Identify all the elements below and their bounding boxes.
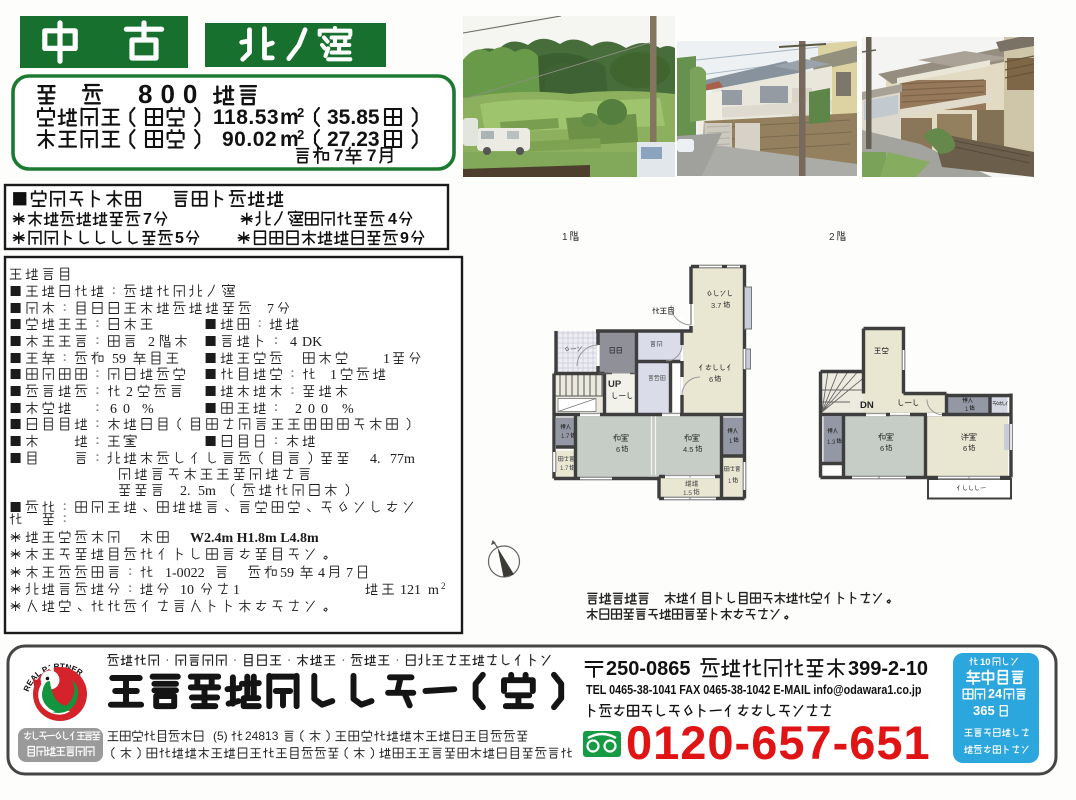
svg-text:10: 10 — [180, 583, 194, 598]
svg-text:1: 1 — [330, 368, 337, 383]
svg-text:1-0022: 1-0022 — [165, 566, 205, 581]
svg-text:4: 4 — [388, 211, 397, 228]
svg-text:UP: UP — [608, 379, 622, 390]
svg-text:399-2-10: 399-2-10 — [848, 658, 928, 680]
svg-text:24: 24 — [988, 687, 1002, 701]
svg-text:59: 59 — [112, 352, 126, 367]
svg-text:2: 2 — [441, 581, 446, 591]
svg-text:4.: 4. — [370, 452, 381, 467]
svg-text:365: 365 — [973, 703, 995, 718]
svg-text:6: 6 — [880, 444, 884, 453]
svg-text:3.7: 3.7 — [711, 301, 721, 310]
svg-text:%: % — [342, 402, 354, 417]
svg-text:4: 4 — [318, 566, 325, 581]
svg-text:7: 7 — [334, 146, 343, 165]
svg-text:2: 2 — [297, 105, 304, 120]
svg-text:77m: 77m — [390, 452, 415, 467]
svg-text:10: 10 — [980, 657, 991, 668]
svg-text:m: m — [280, 106, 299, 129]
svg-text:m: m — [280, 128, 299, 151]
svg-text:(5): (5) — [213, 729, 228, 743]
svg-text:9: 9 — [400, 230, 409, 247]
svg-text:2: 2 — [829, 232, 835, 243]
svg-text:1.7: 1.7 — [560, 466, 569, 472]
svg-text:6: 6 — [709, 375, 713, 384]
svg-text:6: 6 — [963, 444, 967, 453]
svg-text:118.53: 118.53 — [213, 106, 279, 129]
svg-text:7: 7 — [367, 146, 376, 165]
svg-text:4: 4 — [290, 335, 297, 350]
svg-text:121: 121 — [400, 583, 421, 598]
svg-text:2.: 2. — [180, 484, 191, 499]
svg-text:m: m — [428, 583, 439, 598]
svg-text:24813: 24813 — [245, 729, 279, 743]
svg-text:6: 6 — [616, 445, 620, 454]
svg-text:2: 2 — [126, 385, 133, 400]
svg-text:7: 7 — [267, 302, 274, 317]
svg-text:1: 1 — [233, 583, 240, 598]
svg-text:%: % — [142, 402, 154, 417]
svg-text:90.02: 90.02 — [222, 128, 277, 151]
svg-text:5m: 5m — [198, 484, 216, 499]
svg-text:200: 200 — [295, 402, 334, 417]
svg-text:1: 1 — [562, 232, 568, 243]
svg-text:59: 59 — [280, 566, 294, 581]
svg-text:TEL 0465-38-1041 FAX 0465-38-1: TEL 0465-38-1041 FAX 0465-38-1042 E-MAIL… — [586, 682, 922, 697]
svg-text:1: 1 — [383, 352, 390, 367]
svg-text:800: 800 — [138, 79, 205, 109]
svg-text:DK: DK — [302, 335, 322, 350]
svg-text:35.85: 35.85 — [327, 106, 380, 129]
svg-text:2: 2 — [297, 127, 304, 142]
svg-text:2: 2 — [148, 335, 155, 350]
svg-text:0120-657-651: 0120-657-651 — [626, 716, 931, 769]
svg-text:60: 60 — [110, 402, 136, 417]
svg-text:5: 5 — [175, 230, 184, 247]
svg-text:1.5: 1.5 — [683, 490, 692, 497]
svg-text:7: 7 — [346, 566, 353, 581]
svg-text:W2.4m H1.8m L4.8m: W2.4m H1.8m L4.8m — [190, 531, 319, 546]
svg-text:1.3: 1.3 — [827, 440, 836, 446]
svg-text:4.5: 4.5 — [683, 445, 693, 454]
svg-text:DN: DN — [860, 400, 874, 411]
svg-text:7: 7 — [143, 211, 152, 228]
svg-text:1.7: 1.7 — [561, 434, 570, 440]
svg-text:250-0865: 250-0865 — [606, 658, 691, 680]
